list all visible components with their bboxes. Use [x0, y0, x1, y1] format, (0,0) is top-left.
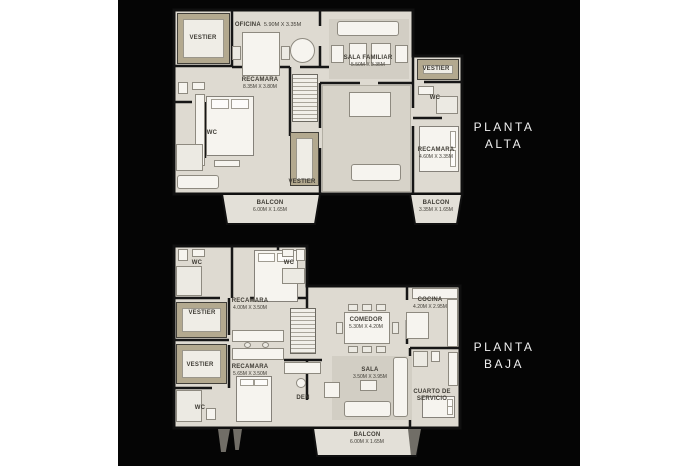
closet-vestier-bottom	[290, 132, 319, 186]
closet-interior	[296, 138, 313, 180]
toilet	[178, 249, 188, 261]
planta-alta-title: PLANTA ALTA	[474, 119, 535, 153]
sink	[418, 86, 434, 95]
room-label-balcon-left: BALCON 6.00M X 1.65M	[253, 200, 287, 213]
armchair	[324, 382, 340, 398]
room-label-sala-familiar: SALA FAMILIAR 5.50M X 3.35M	[344, 55, 393, 68]
room-label-balcon-right: BALCON 3.35M X 1.65M	[419, 200, 453, 213]
room-label-wc-bottom-left: WC	[195, 405, 205, 412]
room-label-wc-left: WC	[207, 130, 217, 137]
dining-chair	[348, 346, 358, 353]
dining-chair	[392, 322, 399, 334]
floorplan-planta-baja: WC RECAMARA 4.00M X 3.50M WC VESTIER VES…	[172, 240, 466, 462]
room-label-recamara-1: RECAMARA 4.00M X 3.50M	[232, 298, 269, 311]
room-label-oficina: OFICINA5.90M X 3.35M	[235, 13, 301, 31]
dining-chair	[362, 304, 372, 311]
staircase	[290, 308, 316, 354]
room-label-wc-right: WC	[430, 95, 440, 102]
room-label-cuarto-servicio: CUARTO DE SERVICIO	[413, 389, 450, 403]
office-desk	[242, 32, 280, 76]
service-closet	[448, 352, 458, 386]
toilet	[178, 82, 188, 94]
sink	[192, 249, 205, 257]
room-label-cocina: COCINA 4.20M X 2.95M	[413, 297, 447, 310]
study-desk-2	[232, 348, 284, 360]
bathtub	[177, 175, 219, 189]
desk-chair	[262, 342, 269, 348]
room-label-sala: SALA 3.50M X 3.95M	[353, 367, 387, 380]
room-label-vestier-1: VESTIER	[188, 310, 215, 317]
family-room-armchair-right	[395, 45, 408, 63]
den-desk	[284, 362, 321, 374]
office-chair-left	[232, 46, 241, 60]
void-sofa	[351, 164, 401, 181]
living-sofa-bottom	[344, 401, 391, 417]
family-room-armchair-left	[331, 45, 344, 63]
dining-chair	[336, 322, 343, 334]
planta-baja-title: PLANTA BAJA	[474, 339, 535, 373]
dining-table	[349, 92, 391, 117]
backdrop: OFICINA5.90M X 3.35M VESTIER SALA FAMILI…	[118, 0, 580, 466]
coffee-table	[360, 380, 377, 391]
study-desk-1	[232, 330, 284, 342]
toilet	[431, 351, 440, 362]
room-label-recamara-principal: RECAMARA 8.35M X 3.80M	[242, 77, 279, 90]
closet-vestier-1	[176, 302, 227, 338]
dining-chair	[348, 304, 358, 311]
room-label-den: DEN	[296, 395, 309, 402]
family-room-sofa	[337, 21, 399, 36]
toilet	[296, 249, 305, 261]
shower	[413, 351, 428, 367]
room-label-vestier-right: VESTIER	[422, 66, 449, 73]
room-label-comedor: COMEDOR 5.30M X 4.20M	[349, 317, 383, 330]
room-label-wc-top-left: WC	[192, 260, 202, 267]
den-chair	[296, 378, 306, 388]
bed-bench	[214, 160, 240, 167]
round-meeting-table	[290, 38, 315, 63]
page: OFICINA5.90M X 3.35M VESTIER SALA FAMILI…	[0, 0, 700, 466]
bedroom-2-bed	[236, 376, 272, 422]
sink	[282, 249, 294, 257]
kitchen-island	[406, 312, 429, 339]
dining-chair	[376, 346, 386, 353]
toilet	[206, 408, 216, 420]
shower	[176, 266, 202, 296]
staircase	[292, 74, 318, 122]
room-label-recamara-2: RECAMARA 5.65M X 3.50M	[232, 364, 269, 377]
room-label-vestier-bottom: VESTIER	[288, 179, 315, 186]
living-sofa-right	[393, 357, 408, 417]
floorplan-planta-alta: OFICINA5.90M X 3.35M VESTIER SALA FAMILI…	[172, 8, 466, 230]
room-label-recamara-2: RECAMARA 4.60M X 3.35M	[418, 147, 455, 160]
dining-chair	[362, 346, 372, 353]
room-label-vestier-top-left: VESTIER	[189, 35, 216, 42]
room-label-wc-top-mid: WC	[284, 260, 294, 267]
kitchen-counter-side	[447, 299, 458, 347]
room-label-vestier-2: VESTIER	[186, 362, 213, 369]
office-chair-right	[281, 46, 290, 60]
dining-chair	[376, 304, 386, 311]
master-bed	[206, 96, 254, 156]
shower	[282, 268, 305, 284]
shower	[176, 144, 203, 171]
sink	[192, 82, 205, 90]
desk-chair	[244, 342, 251, 348]
room-label-balcon: BALCON 6.00M X 1.65M	[350, 432, 384, 445]
